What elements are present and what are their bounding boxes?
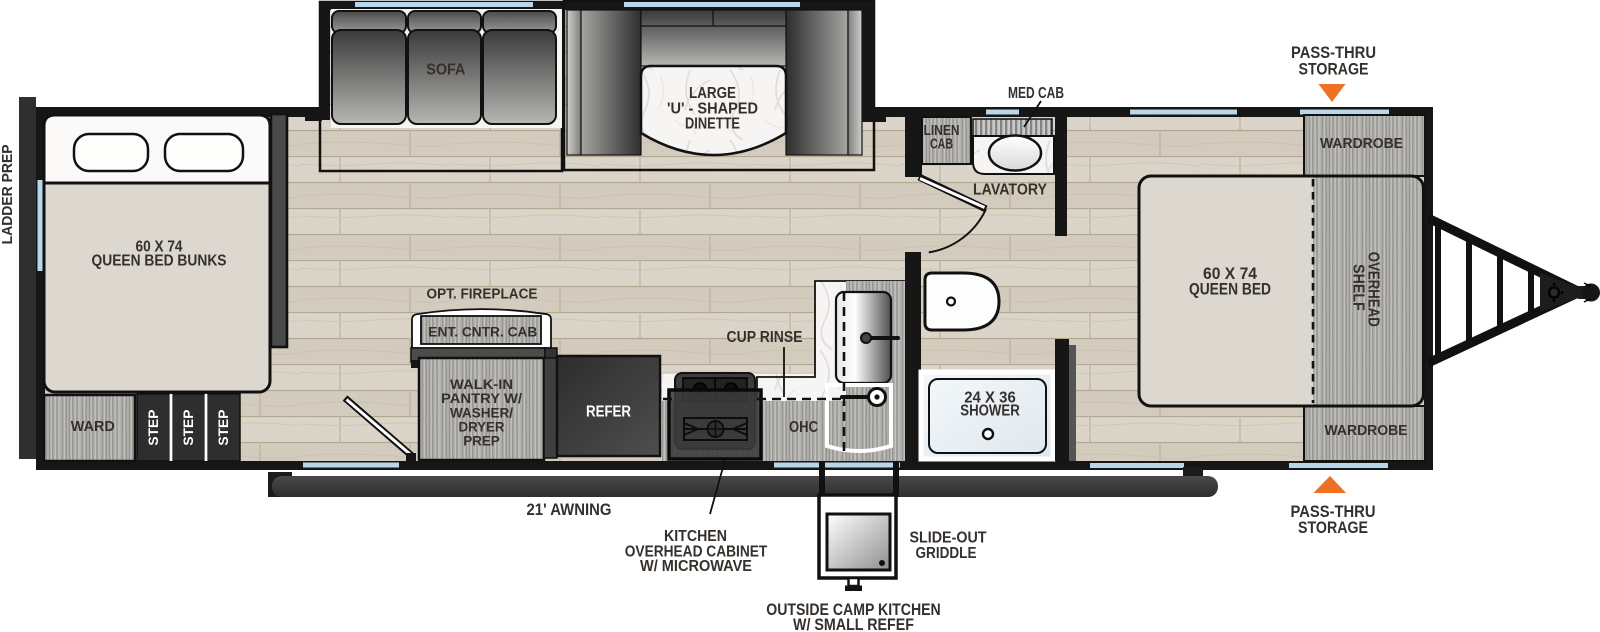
svg-text:SHELF: SHELF <box>1350 264 1367 311</box>
svg-text:W/ SMALL REFEF: W/ SMALL REFEF <box>793 615 914 632</box>
svg-text:CUP RINSE: CUP RINSE <box>727 329 803 346</box>
svg-text:PASS-THRU: PASS-THRU <box>1291 44 1376 62</box>
svg-text:STEP: STEP <box>181 410 196 446</box>
svg-text:PREP: PREP <box>463 433 500 449</box>
svg-text:LARGE: LARGE <box>689 85 736 102</box>
svg-text:STEP: STEP <box>146 410 161 446</box>
svg-text:STORAGE: STORAGE <box>1298 519 1368 537</box>
svg-text:W/ MICROWAVE: W/ MICROWAVE <box>640 558 752 575</box>
svg-text:QUEEN BED: QUEEN BED <box>1189 280 1271 299</box>
svg-text:STEP: STEP <box>216 410 231 446</box>
svg-text:OHC: OHC <box>789 419 818 436</box>
svg-text:ENT. CNTR. CAB: ENT. CNTR. CAB <box>428 325 537 340</box>
svg-text:LADDER PREP: LADDER PREP <box>0 144 16 244</box>
svg-text:REFER: REFER <box>586 404 631 421</box>
svg-text:SHOWER: SHOWER <box>960 403 1020 420</box>
svg-text:CAB: CAB <box>930 137 953 153</box>
svg-text:WARD: WARD <box>71 418 115 435</box>
svg-text:GRIDDLE: GRIDDLE <box>916 545 977 562</box>
svg-text:WARDROBE: WARDROBE <box>1325 423 1408 439</box>
svg-text:21' AWNING: 21' AWNING <box>527 500 612 519</box>
svg-text:STORAGE: STORAGE <box>1299 61 1369 79</box>
svg-text:OPT. FIREPLACE: OPT. FIREPLACE <box>427 287 538 303</box>
svg-text:QUEEN BED BUNKS: QUEEN BED BUNKS <box>92 253 227 270</box>
svg-text:KITCHEN: KITCHEN <box>664 528 727 545</box>
svg-text:MED CAB: MED CAB <box>1008 85 1064 102</box>
svg-text:SOFA: SOFA <box>426 62 465 79</box>
svg-text:SLIDE-OUT: SLIDE-OUT <box>910 530 987 547</box>
svg-text:WARDROBE: WARDROBE <box>1320 136 1403 152</box>
svg-text:DINETTE: DINETTE <box>685 116 740 133</box>
svg-text:LAVATORY: LAVATORY <box>973 182 1047 199</box>
